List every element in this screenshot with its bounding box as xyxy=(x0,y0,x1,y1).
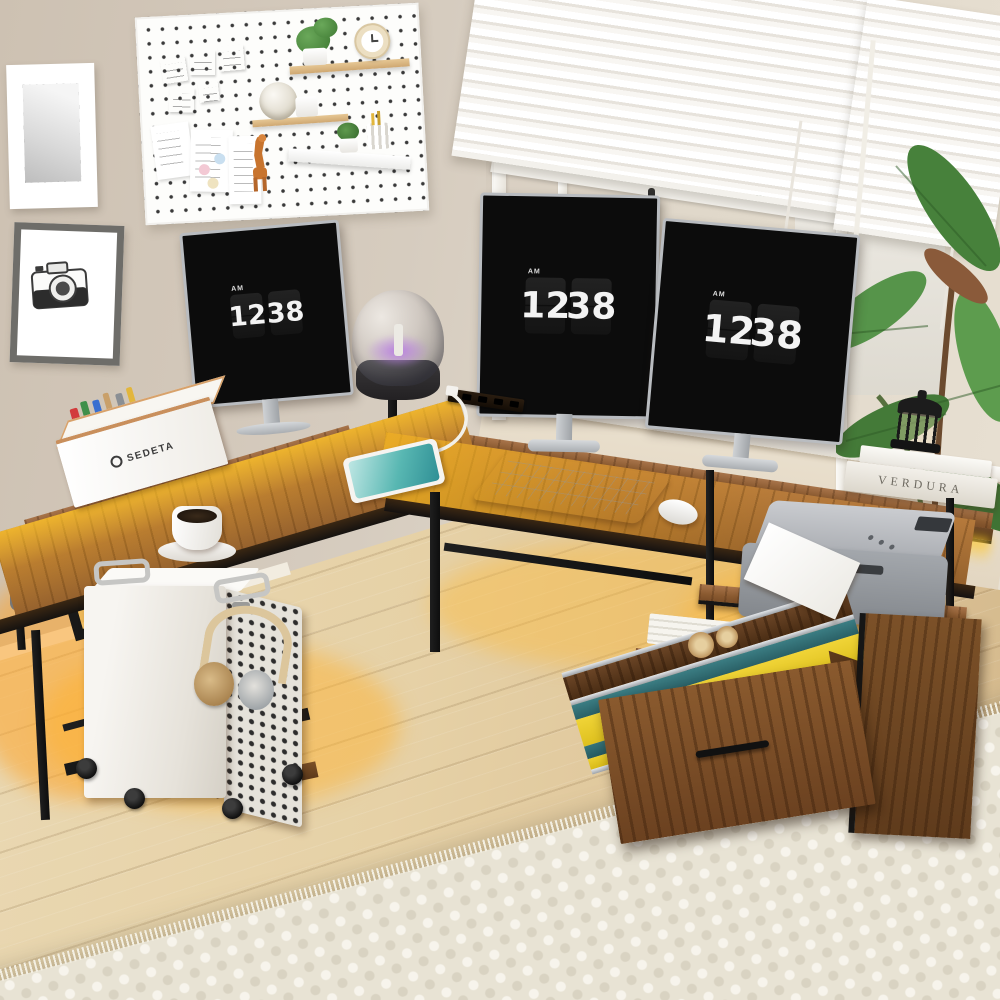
sticky-note xyxy=(190,50,215,75)
monitor-screen: AM 12 38 xyxy=(476,192,660,419)
caster-wheel xyxy=(222,798,243,819)
yarn-ball xyxy=(258,81,298,121)
pinned-paper xyxy=(150,121,195,180)
sedeta-logo-text: SEDETA xyxy=(126,440,176,464)
clock-meridiem: AM xyxy=(712,290,725,298)
sticky-note xyxy=(160,56,189,85)
outlet xyxy=(509,401,519,408)
desk-corner-leg xyxy=(430,492,440,652)
clock-minute-card: 38 xyxy=(753,303,800,364)
picture-frame-camera xyxy=(10,222,125,366)
striped-cup xyxy=(367,122,390,149)
headphones-earcup xyxy=(194,662,234,706)
washi-tape-roll xyxy=(716,626,738,648)
home-office-photo: AM 12 38 AM 12 38 AM 12 38 xyxy=(0,0,1000,1000)
caster-wheel xyxy=(124,788,145,809)
caster-wheel xyxy=(76,758,97,779)
printer-display xyxy=(914,516,953,532)
pc-rolling-cart xyxy=(66,546,326,846)
sticky-note xyxy=(218,45,245,72)
camera-sketch xyxy=(17,229,103,344)
sedeta-logo-icon xyxy=(109,454,124,469)
outlet xyxy=(494,398,504,405)
plant-pot xyxy=(303,48,328,66)
flip-clock: AM 12 38 xyxy=(230,289,304,339)
headphones-earcup xyxy=(238,670,274,710)
small-cup xyxy=(295,96,318,117)
printer-button xyxy=(888,544,895,549)
giraffe-figurine xyxy=(243,132,276,195)
monitor-stand-base xyxy=(236,420,311,437)
speaker-inner-detail xyxy=(394,324,403,356)
clock-minute-card: 38 xyxy=(571,278,612,335)
clock-meridiem: AM xyxy=(528,268,541,275)
printer-button xyxy=(867,535,874,540)
sticky-note xyxy=(169,87,195,113)
washi-tape-roll xyxy=(688,632,714,658)
sticky-note xyxy=(198,81,220,103)
flip-clock: AM 12 38 xyxy=(705,299,800,365)
clock-hour-card: 12 xyxy=(705,299,752,360)
decorative-lantern xyxy=(887,387,950,457)
clock-meridiem: AM xyxy=(231,285,244,293)
flip-clock: AM 12 38 xyxy=(525,277,612,334)
coffee-surface xyxy=(177,509,217,523)
pencil xyxy=(377,111,381,125)
pencil xyxy=(371,113,375,125)
pegboard xyxy=(135,3,429,226)
clock-minute-card: 38 xyxy=(268,289,304,336)
clock-hour-card: 12 xyxy=(525,277,566,334)
book-spine-title: VERDURA xyxy=(877,472,964,497)
monitor-center: AM 12 38 xyxy=(476,192,660,453)
tower-handle xyxy=(93,558,151,586)
alarm-clock xyxy=(353,22,391,60)
monitor-stand-base xyxy=(528,439,600,452)
clock-hand xyxy=(372,40,378,42)
plant-leaves xyxy=(313,17,338,38)
cactus-pot xyxy=(339,138,358,153)
clock-hour-card: 12 xyxy=(230,292,266,339)
drawer-handle xyxy=(695,740,769,758)
monitor-right: AM 12 38 xyxy=(642,218,861,482)
caster-wheel xyxy=(282,764,303,785)
printer-button xyxy=(878,540,885,545)
monitor-stand-neck xyxy=(556,414,572,442)
coffee-cup xyxy=(172,506,222,550)
bluetooth-speaker xyxy=(352,290,444,402)
picture-frame-abstract xyxy=(6,63,98,209)
side-cabinet xyxy=(848,613,981,839)
monitor-screen: AM 12 38 xyxy=(645,218,861,445)
abstract-line-art xyxy=(23,83,82,182)
